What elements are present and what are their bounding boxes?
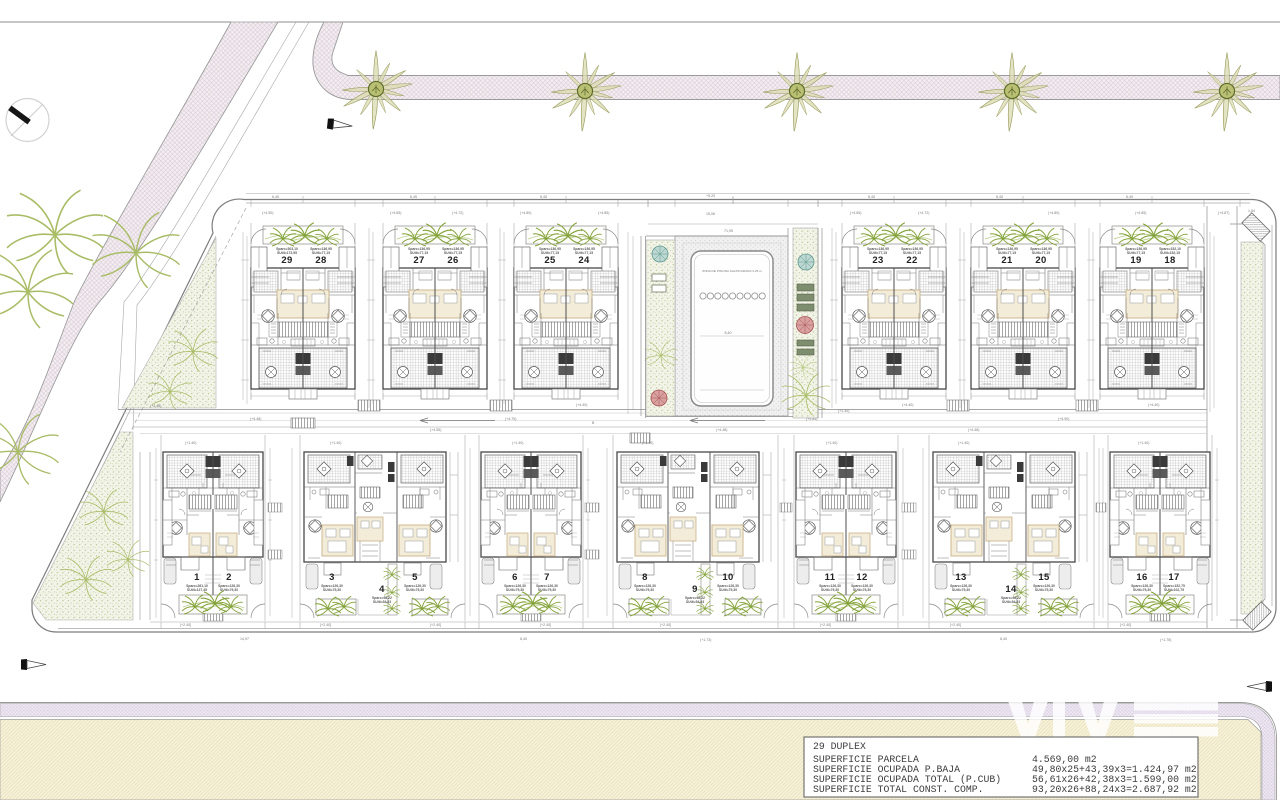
- svg-text:SUtil=79,30: SUtil=79,30: [636, 588, 654, 592]
- svg-text:(+4.50): (+4.50): [262, 211, 274, 215]
- svg-text:(+4.40): (+4.40): [576, 403, 588, 407]
- svg-text:SUtil=79,30: SUtil=79,30: [406, 588, 424, 592]
- svg-text:(+4.40): (+4.40): [902, 403, 914, 407]
- svg-text:(+3.48): (+3.48): [150, 404, 162, 408]
- svg-text:(+4.55): (+4.55): [430, 428, 442, 432]
- svg-text:SUtil=79,30: SUtil=79,30: [952, 588, 970, 592]
- svg-text:14: 14: [1005, 584, 1017, 595]
- svg-text:SUtil=79,30: SUtil=79,30: [719, 588, 737, 592]
- svg-text:(+4.87): (+4.87): [1218, 211, 1230, 215]
- svg-text:8,40: 8,40: [725, 331, 732, 335]
- svg-text:6,45: 6,45: [540, 195, 547, 199]
- svg-text:(+4.48): (+4.48): [716, 428, 728, 432]
- svg-text:(+1.40): (+1.40): [330, 441, 342, 445]
- svg-text:(+4.48): (+4.48): [250, 417, 262, 421]
- svg-text:3: 3: [329, 572, 335, 583]
- svg-text:2: 2: [226, 572, 232, 583]
- svg-text:16: 16: [1136, 572, 1147, 583]
- svg-text:SUtil=79,30: SUtil=79,30: [220, 588, 238, 592]
- svg-text:+5,20: +5,20: [706, 194, 715, 198]
- svg-text:ZONA DE PISCINA SALPICADURA 3,: ZONA DE PISCINA SALPICADURA 3,25 m: [702, 269, 762, 273]
- svg-text:SUtil=79,30: SUtil=79,30: [1035, 588, 1053, 592]
- svg-text:(+4.90): (+4.90): [1058, 417, 1070, 421]
- svg-text:23: 23: [872, 255, 883, 266]
- svg-text:8,40: 8,40: [520, 637, 527, 641]
- svg-text:SUtil=79,30: SUtil=79,30: [323, 588, 341, 592]
- svg-text:11: 11: [825, 572, 836, 583]
- svg-text:22: 22: [906, 255, 917, 266]
- svg-text:27: 27: [413, 255, 424, 266]
- svg-text:(+1.78): (+1.78): [1160, 638, 1172, 642]
- svg-text:SUtil=127,45: SUtil=127,45: [187, 588, 207, 592]
- svg-text:[+2.40]: [+2.40]: [950, 623, 961, 627]
- svg-text:SUtil=54,53: SUtil=54,53: [373, 600, 391, 604]
- svg-text:(+4.40): (+4.40): [1148, 403, 1160, 407]
- svg-text:14,97: 14,97: [240, 637, 249, 641]
- svg-text:SUtil=54,53: SUtil=54,53: [686, 600, 704, 604]
- svg-text:(+4.80): (+4.80): [1048, 211, 1060, 215]
- svg-text:(+4.72): (+4.72): [918, 211, 930, 215]
- svg-text:(+4.80): (+4.80): [520, 211, 532, 215]
- svg-text:24: 24: [578, 255, 590, 266]
- svg-text:9: 9: [692, 584, 698, 595]
- svg-text:25: 25: [544, 255, 556, 266]
- svg-text:19: 19: [1130, 255, 1141, 266]
- svg-text:SUtil=79,30: SUtil=79,30: [821, 588, 839, 592]
- svg-text:6: 6: [512, 572, 518, 583]
- svg-text:10: 10: [722, 572, 733, 583]
- svg-text:4: 4: [379, 584, 385, 595]
- svg-text:[+2.40]: [+2.40]: [180, 623, 191, 627]
- svg-text:(+4.85): (+4.85): [598, 211, 610, 215]
- svg-text:8: 8: [642, 572, 648, 583]
- svg-text:SUPERFICIE TOTAL CONST. COMP.: SUPERFICIE TOTAL CONST. COMP.: [813, 784, 984, 795]
- svg-text:7: 7: [544, 572, 550, 583]
- svg-text:(+1.40): (+1.40): [185, 441, 197, 445]
- svg-text:18: 18: [1164, 255, 1175, 266]
- svg-text:(+4.65): (+4.65): [850, 211, 862, 215]
- svg-text:21: 21: [1001, 255, 1013, 266]
- svg-text:29: 29: [281, 255, 292, 266]
- svg-text:15,06: 15,06: [706, 212, 715, 216]
- svg-text:20: 20: [1035, 255, 1046, 266]
- svg-text:(+4.75): (+4.75): [505, 417, 517, 421]
- svg-text:6,45: 6,45: [272, 195, 279, 199]
- svg-text:13: 13: [955, 572, 966, 583]
- svg-text:SUtil=54,53: SUtil=54,53: [1002, 600, 1020, 604]
- svg-text:93,20x26+88,24x3=2.687,92 m2: 93,20x26+88,24x3=2.687,92 m2: [1032, 784, 1197, 795]
- svg-text:SUtil=79,30: SUtil=79,30: [506, 588, 524, 592]
- svg-text:(+1.40): (+1.40): [826, 441, 838, 445]
- svg-text:(+1.40): (+1.40): [642, 441, 654, 445]
- svg-text:(+4.72): (+4.72): [452, 211, 464, 215]
- svg-text:SUtil=79,30: SUtil=79,30: [853, 588, 871, 592]
- svg-text:SUtil=79,30: SUtil=79,30: [538, 588, 556, 592]
- svg-text:15: 15: [1038, 572, 1050, 583]
- svg-text:(+4.65): (+4.65): [390, 211, 402, 215]
- svg-text:6,45: 6,45: [996, 195, 1003, 199]
- svg-text:[+2.40]: [+2.40]: [660, 623, 671, 627]
- svg-text:[+2.40]: [+2.40]: [540, 623, 551, 627]
- svg-text:(+1.40): (+1.40): [512, 441, 524, 445]
- svg-text:(+4.85): (+4.85): [1135, 211, 1147, 215]
- svg-text:12: 12: [856, 572, 867, 583]
- svg-text:[+2.40]: [+2.40]: [820, 623, 831, 627]
- svg-text:1,84: 1,84: [1248, 209, 1255, 213]
- svg-text:28: 28: [315, 255, 326, 266]
- svg-text:17: 17: [1168, 572, 1179, 583]
- svg-text:SUtil=102,75: SUtil=102,75: [1164, 588, 1184, 592]
- svg-text:(+1.30): (+1.30): [838, 409, 850, 413]
- svg-text:29 DUPLEX: 29 DUPLEX: [813, 741, 866, 752]
- svg-text:[+2.40]: [+2.40]: [320, 623, 331, 627]
- svg-text:1: 1: [194, 572, 200, 583]
- svg-text:26: 26: [447, 255, 458, 266]
- svg-text:6,45: 6,45: [868, 195, 875, 199]
- svg-text:(+1.73): (+1.73): [700, 638, 712, 642]
- svg-text:(+4.48): (+4.48): [968, 428, 980, 432]
- svg-text:71,95: 71,95: [724, 229, 733, 233]
- svg-text:5: 5: [412, 572, 418, 583]
- svg-text:(+1.40): (+1.40): [1138, 441, 1150, 445]
- svg-text:8,40: 8,40: [1000, 637, 1007, 641]
- svg-text:(+1.40): (+1.40): [958, 441, 970, 445]
- svg-text:6,45: 6,45: [1126, 195, 1133, 199]
- svg-text:[+2.40]: [+2.40]: [1120, 623, 1131, 627]
- svg-text:SUtil=79,30: SUtil=79,30: [1133, 588, 1151, 592]
- svg-text:6,45: 6,45: [410, 195, 417, 199]
- svg-text:[+2.40]: [+2.40]: [430, 623, 441, 627]
